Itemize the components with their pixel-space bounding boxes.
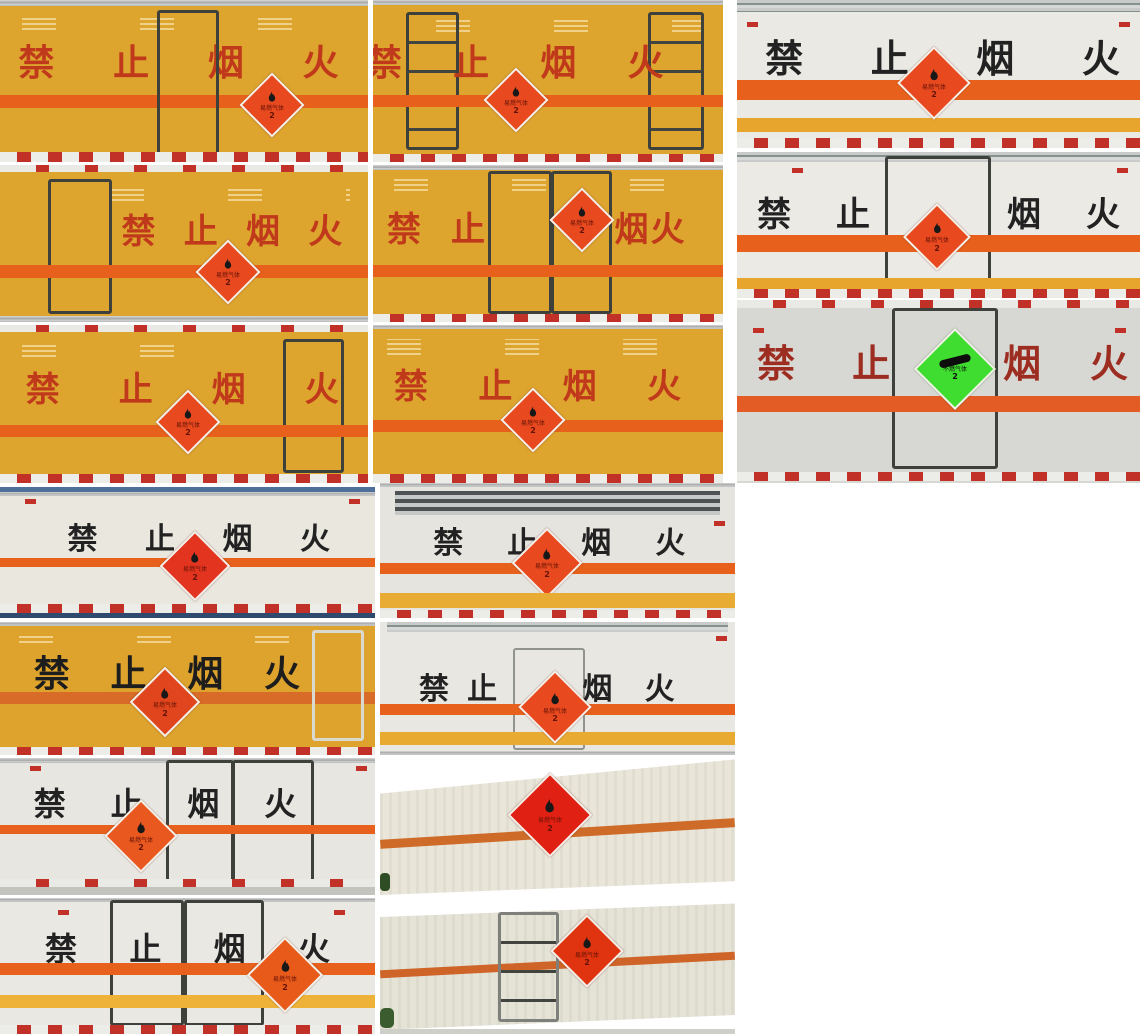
- bottom-rail: [380, 751, 735, 755]
- warning-char: 火: [308, 215, 342, 249]
- warning-text-right: 烟火: [1007, 198, 1120, 232]
- reflective-strip-top: [737, 300, 1140, 308]
- top-rail: [380, 483, 735, 487]
- placard-content: 易燃气体 2: [531, 683, 579, 731]
- yellow-stripe: [0, 995, 375, 1008]
- warning-char: 禁: [26, 373, 60, 407]
- warning-char: 烟: [214, 933, 246, 965]
- photo-white-side-center-door: 禁止 烟火 易燃气体 2: [380, 622, 735, 755]
- warning-char: 止: [145, 525, 175, 555]
- warning-text-left: 禁止: [387, 213, 485, 247]
- warning-char: 火: [303, 46, 339, 82]
- orange-stripe: [373, 95, 723, 107]
- red-mark-left: [30, 766, 41, 771]
- flame-icon: [180, 407, 196, 423]
- orange-stripe: [0, 265, 368, 278]
- warning-char: 止: [113, 46, 149, 82]
- warning-char: 止: [871, 40, 909, 78]
- flame-icon: [276, 958, 295, 977]
- warning-char: 烟: [187, 788, 219, 820]
- flame-icon: [538, 547, 555, 564]
- reflective-strip: [0, 879, 375, 887]
- warning-char: 禁: [433, 529, 463, 559]
- warning-char: 烟: [223, 525, 253, 555]
- top-rail: [387, 622, 728, 632]
- placard-class-number: 2: [579, 227, 585, 235]
- warning-char: 禁: [34, 788, 66, 820]
- placard-content: 易燃气体 2: [172, 543, 218, 589]
- warning-char: 烟: [246, 215, 280, 249]
- warning-char: 禁: [765, 40, 803, 78]
- photo-gray-rear-green-placard: 禁止 烟火 不燃气体 2: [737, 300, 1140, 483]
- reflective-strip: [737, 289, 1140, 298]
- warning-char: 止: [129, 933, 161, 965]
- warning-char: 烟: [615, 213, 649, 247]
- placard-class-number: 2: [192, 574, 198, 582]
- warning-char: 火: [655, 529, 685, 559]
- door-frame: [48, 179, 112, 314]
- photo-orange-side-door-right: 禁止烟火 易燃气体 2: [0, 325, 368, 483]
- placard-content: 不燃气体 2: [928, 342, 982, 396]
- vent-slats: [22, 345, 258, 357]
- flame-icon: [156, 686, 173, 703]
- reflective-strip: [0, 152, 368, 162]
- warning-char: 烟: [581, 529, 611, 559]
- warning-text-right: 烟火: [615, 213, 685, 247]
- bush: [380, 1008, 394, 1028]
- yellow-stripe: [380, 593, 735, 608]
- warning-char: 火: [264, 788, 296, 820]
- reflective-strip: [0, 747, 375, 755]
- orange-stripe: [373, 265, 723, 277]
- flame-icon: [546, 691, 564, 709]
- door-frame-left: [166, 760, 234, 887]
- placard-content: 易燃气体 2: [117, 812, 165, 860]
- photo-orange-rear-ladders: 禁止烟火 易燃气体 2: [373, 0, 723, 162]
- placard-class-number: 2: [513, 107, 519, 115]
- reflective-strip-top: [0, 165, 368, 172]
- placard-content: 易燃气体 2: [260, 950, 310, 1000]
- warning-char: 禁: [45, 933, 77, 965]
- placard-content: 易燃气体 2: [561, 199, 603, 241]
- warning-text: 禁止烟火: [34, 788, 297, 820]
- dark-blue-bottom-edge: [0, 613, 375, 618]
- orange-stripe: [0, 825, 375, 834]
- photo-white-side-doors-right: 禁止烟火 易燃气体 2: [0, 758, 375, 895]
- red-mark-right: [356, 766, 367, 771]
- photo-white-side-louvers: 禁止烟火 易燃气体 2: [380, 483, 735, 618]
- warning-char: 火: [1090, 345, 1128, 383]
- placard-content: 易燃气体 2: [251, 84, 293, 126]
- placard-class-number: 2: [584, 959, 590, 967]
- flame-icon: [132, 820, 150, 838]
- placard-content: 易燃气体 2: [563, 927, 611, 975]
- warning-char: 烟: [976, 40, 1014, 78]
- top-rail: [0, 492, 375, 496]
- flame-icon: [574, 205, 590, 221]
- flame-icon: [264, 90, 280, 106]
- placard-class-number: 2: [138, 844, 144, 852]
- hazard-placard-flammable-gas: 易燃气体 2: [239, 72, 304, 137]
- warning-char: 禁: [757, 345, 795, 383]
- flame-icon: [929, 221, 946, 238]
- warning-char: 止: [478, 370, 512, 404]
- warning-char: 禁: [373, 46, 402, 82]
- yellow-stripe: [737, 118, 1140, 132]
- placard-content: 易燃气体 2: [915, 215, 959, 259]
- placard-content: 易燃气体 2: [167, 401, 209, 443]
- door-frame: [157, 10, 219, 156]
- reflective-strip: [373, 314, 723, 322]
- photo-orange-side-door-left: 禁止烟火 易燃气体 2: [0, 165, 368, 322]
- red-mark-left: [58, 910, 69, 915]
- placard-class-number: 2: [544, 571, 550, 579]
- reflective-strip: [0, 1025, 375, 1034]
- warning-char: 烟: [1003, 345, 1041, 383]
- vent-slats: [110, 189, 349, 201]
- reflective-strip: [0, 604, 375, 613]
- warning-char: 烟: [563, 370, 597, 404]
- warning-text-left: 禁止: [757, 198, 870, 232]
- warning-char: 烟: [1007, 198, 1041, 232]
- red-mark-right: [1117, 168, 1128, 173]
- reflective-strip: [737, 138, 1140, 148]
- door-frame: [312, 630, 364, 741]
- flame-icon: [925, 67, 943, 85]
- side-door-ladder-frame: [498, 912, 559, 1022]
- warning-char: 禁: [34, 657, 70, 693]
- flame-icon: [578, 935, 596, 953]
- top-rail: [373, 0, 723, 5]
- placard-class-number: 2: [931, 91, 937, 99]
- red-mark-right: [334, 910, 345, 915]
- top-rail: [0, 622, 375, 626]
- placard-class-number: 2: [552, 715, 558, 723]
- warning-text-right: 烟火: [1003, 345, 1128, 383]
- flame-icon: [186, 550, 203, 567]
- warning-text-left: 禁止: [757, 345, 890, 383]
- warning-char: 火: [264, 657, 300, 693]
- placard-class-number: 2: [530, 427, 536, 435]
- flame-icon: [220, 257, 236, 273]
- reflective-strip: [737, 472, 1140, 481]
- warning-char: 禁: [387, 213, 421, 247]
- bottom-rail: [0, 316, 368, 322]
- door-frame-left: [488, 171, 552, 314]
- red-mark-right: [1119, 22, 1130, 27]
- placard-class-number: 2: [269, 112, 275, 120]
- warning-char: 止: [467, 675, 497, 705]
- warning-char: 止: [836, 198, 870, 232]
- orange-stripe: [737, 396, 1140, 412]
- warning-char: 禁: [394, 370, 428, 404]
- placard-content: 易燃气体 2: [207, 251, 249, 293]
- reflective-strip: [373, 154, 723, 162]
- door-frame-right: [232, 760, 314, 887]
- placard-content: 易燃气体 2: [495, 79, 537, 121]
- photo-collage: 禁止烟火 易燃气体 2 禁止烟火 易燃气体 2: [0, 0, 1140, 1034]
- warning-char: 火: [305, 373, 339, 407]
- photo-orange-side-plain: 禁止烟火 易燃气体 2: [373, 325, 723, 483]
- photo-orange-rear-double-doors: 禁止 烟火 易燃气体 2: [373, 165, 723, 322]
- warning-char: 火: [645, 675, 675, 705]
- warning-char: 火: [1086, 198, 1120, 232]
- reflective-strip-top: [0, 325, 368, 332]
- warning-text-left: 禁止: [419, 675, 497, 705]
- placard-content: 易燃气体 2: [910, 59, 958, 107]
- warning-char: 禁: [68, 525, 98, 555]
- warning-char: 火: [300, 525, 330, 555]
- red-mark-right: [714, 521, 725, 526]
- ground-strip: [380, 1029, 735, 1034]
- warning-text-right: 烟火: [582, 675, 674, 705]
- photo-angled-trailer-side-door: 易燃气体 2: [380, 898, 735, 1034]
- red-mark-left: [792, 168, 803, 173]
- top-rail: [373, 165, 723, 170]
- photo-cream-side-panel: 禁止烟火 易燃气体 2: [0, 487, 375, 618]
- placard-class-number: 2: [547, 825, 553, 833]
- top-rail: [0, 0, 368, 6]
- photo-white-rear-center-door: 禁止 烟火 易燃气体 2: [737, 152, 1140, 298]
- warning-char: 禁: [18, 46, 54, 82]
- warning-char: 禁: [419, 675, 449, 705]
- warning-char: 火: [651, 213, 685, 247]
- placard-class-number: 2: [282, 984, 288, 992]
- ground-strip: [0, 887, 375, 895]
- top-rail: [373, 325, 723, 329]
- reflective-strip: [0, 474, 368, 483]
- placard-content: 易燃气体 2: [512, 399, 554, 441]
- red-mark-left: [753, 328, 764, 333]
- photo-white-rear-double-doors: 禁止烟火 易燃气体 2: [0, 898, 375, 1034]
- flame-icon: [525, 405, 541, 421]
- warning-char: 止: [119, 373, 153, 407]
- warning-char: 烟: [540, 46, 576, 82]
- placard-class-number: 2: [185, 429, 191, 437]
- warning-char: 止: [184, 215, 218, 249]
- warning-char: 止: [852, 345, 890, 383]
- warning-char: 火: [1082, 40, 1120, 78]
- photo-white-side-panel: 禁止烟火 易燃气体 2: [737, 0, 1140, 148]
- warning-char: 禁: [121, 215, 155, 249]
- vent-slats: [387, 339, 709, 355]
- warning-char: 烟: [187, 657, 223, 693]
- placard-content: 易燃气体 2: [524, 540, 570, 586]
- reflective-strip: [380, 610, 735, 618]
- warning-char: 火: [647, 370, 681, 404]
- placard-class-number: 2: [934, 245, 940, 253]
- louver-vents: [395, 491, 720, 515]
- warning-char: 火: [627, 46, 663, 82]
- warning-char: 止: [453, 46, 489, 82]
- warning-char: 禁: [757, 198, 791, 232]
- flame-icon: [539, 797, 560, 818]
- red-mark-right: [349, 499, 360, 504]
- warning-char: 烟: [582, 675, 612, 705]
- photo-angled-trailer-side: 易燃气体 2: [380, 758, 735, 895]
- placard-content: 易燃气体 2: [522, 787, 578, 843]
- photo-orange-side-black-text: 禁止烟火 易燃气体 2: [0, 622, 375, 755]
- placard-class-number: 2: [162, 710, 168, 718]
- red-mark-right: [1115, 328, 1126, 333]
- placard-content: 易燃气体 2: [142, 679, 188, 725]
- placard-class-number: 2: [952, 373, 958, 381]
- warning-char: 止: [451, 213, 485, 247]
- flame-icon: [508, 85, 524, 101]
- reflective-strip: [373, 474, 723, 483]
- placard-class-number: 2: [225, 279, 231, 287]
- top-rail: [737, 0, 1140, 12]
- photo-orange-side-door-center: 禁止烟火 易燃气体 2: [0, 0, 368, 162]
- vent-slats: [19, 634, 300, 643]
- red-mark-left: [25, 499, 36, 504]
- red-mark-right: [716, 636, 727, 641]
- warning-char: 烟: [212, 373, 246, 407]
- red-mark-left: [747, 22, 758, 27]
- bush: [380, 873, 390, 891]
